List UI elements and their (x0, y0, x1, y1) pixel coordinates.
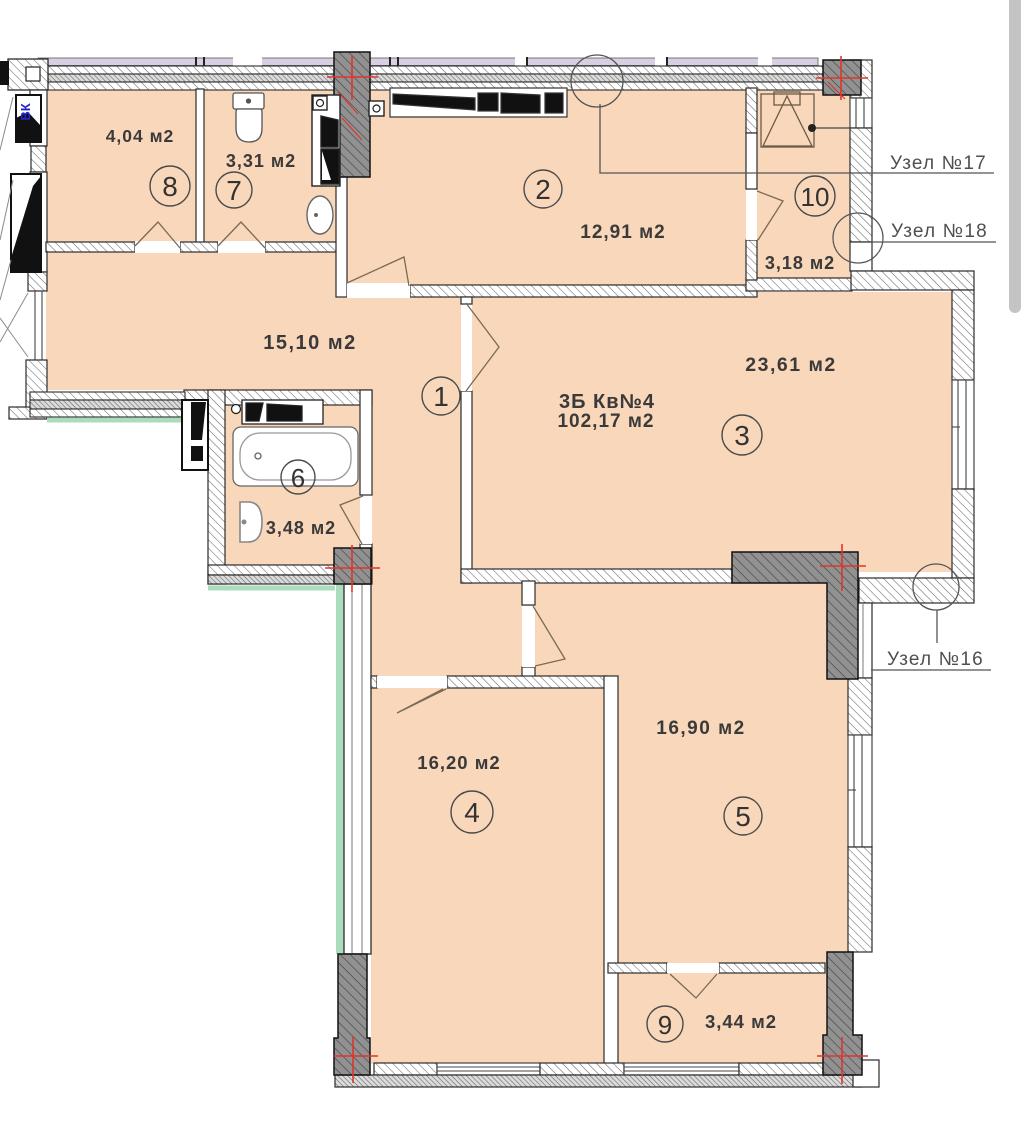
svg-text:Узел №16: Узел №16 (887, 649, 984, 670)
svg-text:1: 1 (433, 381, 449, 412)
svg-text:7: 7 (226, 175, 242, 206)
svg-text:102,17 м2: 102,17 м2 (557, 411, 654, 432)
svg-text:23,61 м2: 23,61 м2 (745, 354, 837, 376)
svg-text:5: 5 (735, 801, 751, 832)
svg-text:3,31 м2: 3,31 м2 (226, 151, 296, 171)
svg-text:Узел №17: Узел №17 (890, 153, 987, 174)
svg-text:12,91 м2: 12,91 м2 (580, 222, 665, 243)
svg-text:3,48 м2: 3,48 м2 (266, 518, 336, 538)
svg-text:2: 2 (535, 174, 551, 205)
svg-text:15,10 м2: 15,10 м2 (263, 332, 357, 354)
svg-text:4,04 м2: 4,04 м2 (106, 126, 175, 146)
svg-text:Узел №18: Узел №18 (891, 221, 988, 242)
svg-text:3,44 м2: 3,44 м2 (705, 1011, 777, 1032)
svg-text:ВК: ВК (18, 103, 33, 120)
svg-text:9: 9 (658, 1010, 672, 1040)
svg-text:8: 8 (162, 171, 178, 202)
svg-text:10: 10 (801, 182, 830, 212)
svg-text:16,20 м2: 16,20 м2 (417, 752, 500, 773)
svg-text:6: 6 (291, 463, 305, 493)
svg-text:3,18 м2: 3,18 м2 (765, 253, 835, 273)
svg-text:16,90 м2: 16,90 м2 (656, 718, 745, 739)
svg-text:3Б Кв№4: 3Б Кв№4 (559, 391, 655, 413)
svg-text:4: 4 (464, 797, 480, 828)
svg-text:3: 3 (734, 420, 750, 451)
